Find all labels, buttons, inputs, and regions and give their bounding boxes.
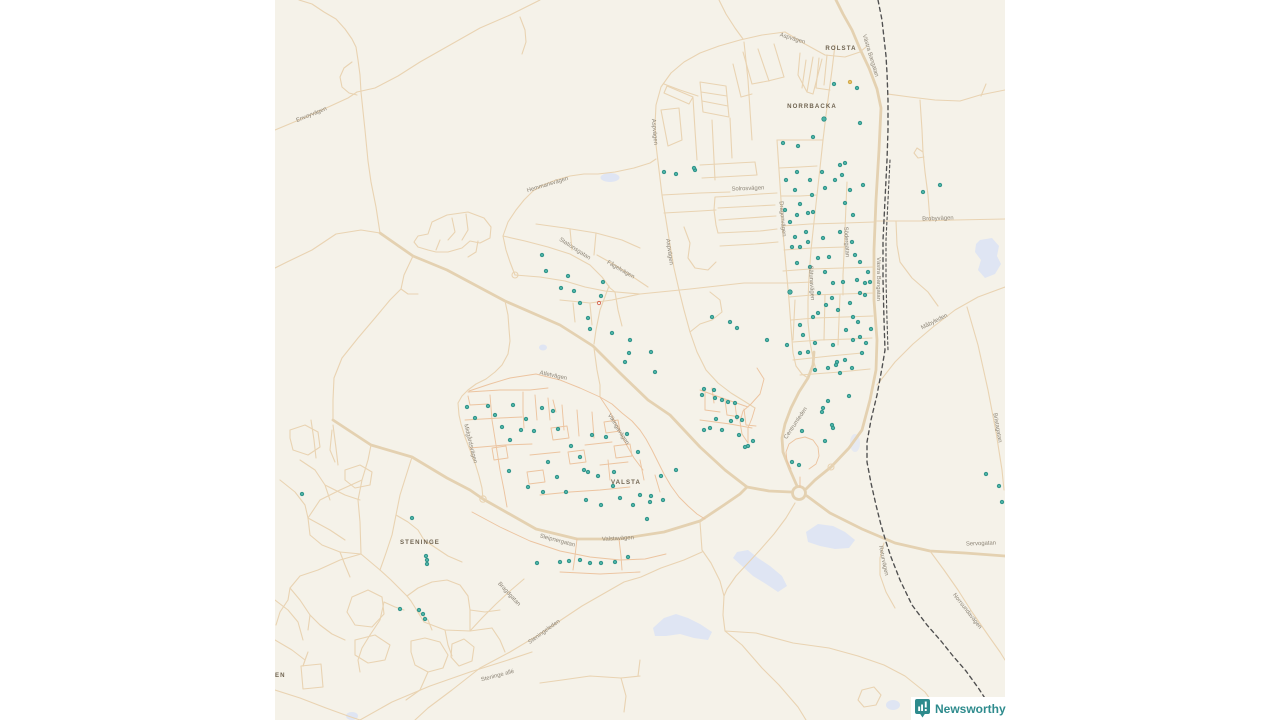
svg-text:STENINGE: STENINGE [400,539,440,546]
svg-text:VALSTA: VALSTA [611,479,641,486]
svg-text:Västra Bangatan: Västra Bangatan [875,257,881,301]
svg-text:Servogatan: Servogatan [966,540,996,547]
svg-text:Solrosvägen: Solrosvägen [731,185,764,192]
svg-text:Brobyvägen: Brobyvägen [922,215,954,222]
svg-text:EN: EN [275,672,286,679]
svg-text:ROLSTA: ROLSTA [825,45,856,52]
svg-text:NORRBACKA: NORRBACKA [787,103,837,110]
